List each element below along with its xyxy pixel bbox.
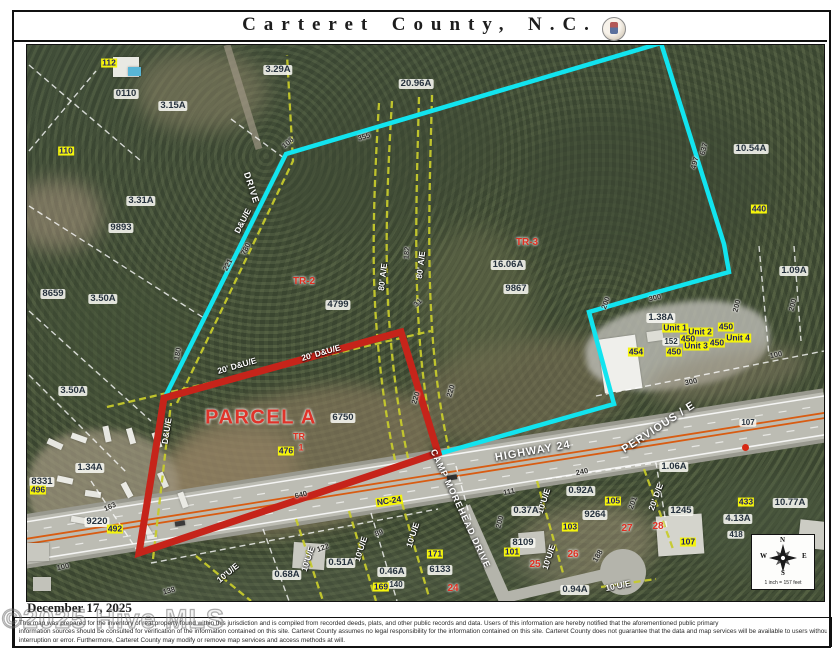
easement-label: 80' A/E — [377, 263, 389, 292]
red-label: 28 — [652, 522, 663, 533]
area-label: 20.96A — [399, 79, 434, 89]
distance-label: 200 — [495, 515, 506, 529]
yellow-label: Unit 3 — [683, 342, 709, 351]
area-label: 4.13A — [723, 514, 752, 524]
area-label: 0110 — [114, 89, 139, 99]
distance-label: 640 — [294, 490, 308, 501]
red-label: TR-2 — [293, 277, 315, 288]
area-label: 1.34A — [75, 463, 104, 473]
yellow-label: 450 — [718, 323, 734, 332]
distance-label: 100 — [769, 350, 783, 360]
red-label: 27 — [621, 524, 632, 535]
page-title: Carteret County, N.C. — [242, 14, 597, 36]
distance-label: 221 — [222, 258, 235, 273]
area-label: 10.54A — [734, 144, 769, 154]
disclaimer-line-2: information sources should be consulted … — [19, 628, 827, 636]
area-label: 418 — [727, 531, 744, 539]
area-label: 0.92A — [566, 486, 595, 496]
easement-label: 20' D&U/E — [216, 356, 257, 376]
distance-label: 780 — [240, 242, 253, 257]
area-label: 0.46A — [377, 567, 406, 577]
easement-label: 10'U/E — [215, 561, 240, 584]
aerial-parcel-map: 01103.15A3.29A20.96A3.31A989386593.50A3.… — [26, 44, 825, 602]
yellow-label: 112 — [101, 59, 117, 68]
map-date: December 17, 2025 — [27, 600, 132, 616]
yellow-label: 476 — [278, 447, 294, 456]
distance-label: 355 — [357, 131, 371, 142]
distance-label: 200 — [600, 296, 612, 310]
road-label: PERVIOUS / E — [620, 400, 698, 456]
disclaimer-line-3: interruption or error. Furthermore, Cart… — [19, 637, 827, 645]
compass-west: W — [760, 552, 767, 560]
easement-label: 10'U/E — [541, 543, 557, 570]
red-label: TR — [293, 432, 305, 441]
scale-text: 1 inch = 157 feet — [752, 580, 814, 586]
red-label: PARCEL A — [205, 408, 317, 429]
disclaimer-line-1: This map was prepared for the inventory … — [19, 620, 827, 628]
yellow-label: 171 — [427, 550, 443, 559]
yellow-label: 454 — [628, 348, 644, 357]
red-label: TR-3 — [516, 238, 538, 249]
area-label: 3.31A — [126, 196, 155, 206]
area-label: 10.77A — [773, 498, 808, 508]
area-label: 4799 — [325, 300, 350, 310]
plat-map-page: Carteret County, N.C. 01103.15A3.29A20.9… — [0, 0, 840, 654]
area-label: 9264 — [582, 510, 607, 520]
yellow-label: Unit 1 — [662, 324, 688, 333]
yellow-label: 450 — [709, 339, 725, 348]
road-label: HIGHWAY 24 — [494, 440, 571, 465]
distance-label: 637 — [699, 142, 710, 156]
distance-label: 300 — [684, 377, 698, 387]
distance-label: 108 — [281, 136, 296, 150]
yellow-label: 433 — [738, 498, 754, 507]
yellow-label: NC-24 — [375, 495, 403, 508]
compass-east: E — [802, 552, 807, 560]
distance-label: 200 — [732, 299, 743, 313]
area-label: 107 — [739, 419, 756, 427]
area-label: 9220 — [84, 517, 109, 527]
yellow-label: 107 — [680, 538, 696, 547]
yellow-label: 450 — [666, 348, 682, 357]
area-label: 3.15A — [158, 101, 187, 111]
distance-label: 240 — [575, 467, 589, 477]
easement-label: 10'U/E — [605, 579, 632, 593]
distance-label: 163 — [103, 501, 118, 513]
easement-label: 80' A/E — [415, 251, 427, 280]
distance-label: 300 — [648, 293, 662, 303]
area-label: 0.94A — [560, 585, 589, 595]
distance-label: 111 — [502, 487, 515, 497]
area-label: 3.50A — [88, 294, 117, 304]
distance-label: 122 — [316, 542, 330, 554]
distance-label: 200 — [788, 298, 799, 312]
distance-label: 100 — [56, 562, 70, 572]
county-seal-icon — [602, 17, 626, 41]
area-label: 8659 — [40, 289, 65, 299]
easement-label: 10'U/E — [405, 521, 421, 548]
distance-label: 89 — [374, 528, 385, 538]
area-label: 1.06A — [659, 462, 688, 472]
area-label: 9893 — [108, 223, 133, 233]
distance-label: 188 — [591, 549, 604, 564]
road-label: DRIVE — [241, 171, 260, 205]
area-label: 152 — [662, 338, 679, 346]
area-label: 140 — [387, 581, 404, 589]
easement-label: 20' D&U/E — [300, 343, 341, 363]
title-bar: Carteret County, N.C. — [12, 10, 827, 40]
easement-label: 10'U/E — [536, 487, 552, 514]
distance-label: 182 — [403, 246, 412, 259]
distance-label: 201 — [627, 496, 639, 510]
area-label: 3.29A — [263, 65, 292, 75]
easement-label: D&U/E — [233, 207, 253, 235]
yellow-label: 496 — [30, 486, 46, 495]
compass-rose: N S W E 1 inch = 157 feet — [751, 534, 815, 590]
easement-label: 20' D/E — [647, 482, 665, 511]
area-label: 16.06A — [491, 260, 526, 270]
labels-layer: 01103.15A3.29A20.96A3.31A989386593.50A3.… — [27, 45, 824, 601]
yellow-label: 103 — [562, 523, 578, 532]
red-label: 24 — [447, 584, 458, 595]
easement-label: 10'U/E — [353, 535, 369, 562]
area-label: 1.38A — [646, 313, 675, 323]
red-label: 26 — [567, 550, 578, 561]
distance-label: 180 — [173, 347, 183, 361]
area-label: 0.68A — [272, 570, 301, 580]
disclaimer-box: This map was prepared for the inventory … — [14, 617, 832, 647]
easement-label: D&U/E — [161, 417, 174, 445]
yellow-label: 110 — [58, 147, 74, 156]
area-label: 1245 — [668, 506, 693, 516]
area-label: 9867 — [503, 284, 528, 294]
distance-label: 220 — [410, 391, 421, 405]
area-label: 6750 — [330, 413, 355, 423]
area-label: 3.50A — [58, 386, 87, 396]
distance-label: 138 — [162, 586, 176, 597]
yellow-label: 440 — [751, 205, 767, 214]
red-label: 25 — [529, 560, 540, 571]
distance-label: 497 — [690, 156, 701, 170]
yellow-label: 169 — [373, 583, 389, 592]
distance-label: 31 — [412, 297, 423, 308]
yellow-label: 492 — [107, 525, 123, 534]
red-label: 1 — [298, 443, 303, 452]
area-label: 6133 — [427, 565, 452, 575]
easement-label: 10'U/E — [300, 545, 316, 572]
yellow-label: Unit 4 — [725, 334, 751, 343]
compass-star-icon — [768, 543, 798, 573]
yellow-label: 105 — [605, 497, 621, 506]
area-label: 1.09A — [779, 266, 808, 276]
yellow-label: 101 — [504, 548, 520, 557]
title-divider — [12, 40, 827, 42]
distance-label: 220 — [445, 384, 456, 398]
